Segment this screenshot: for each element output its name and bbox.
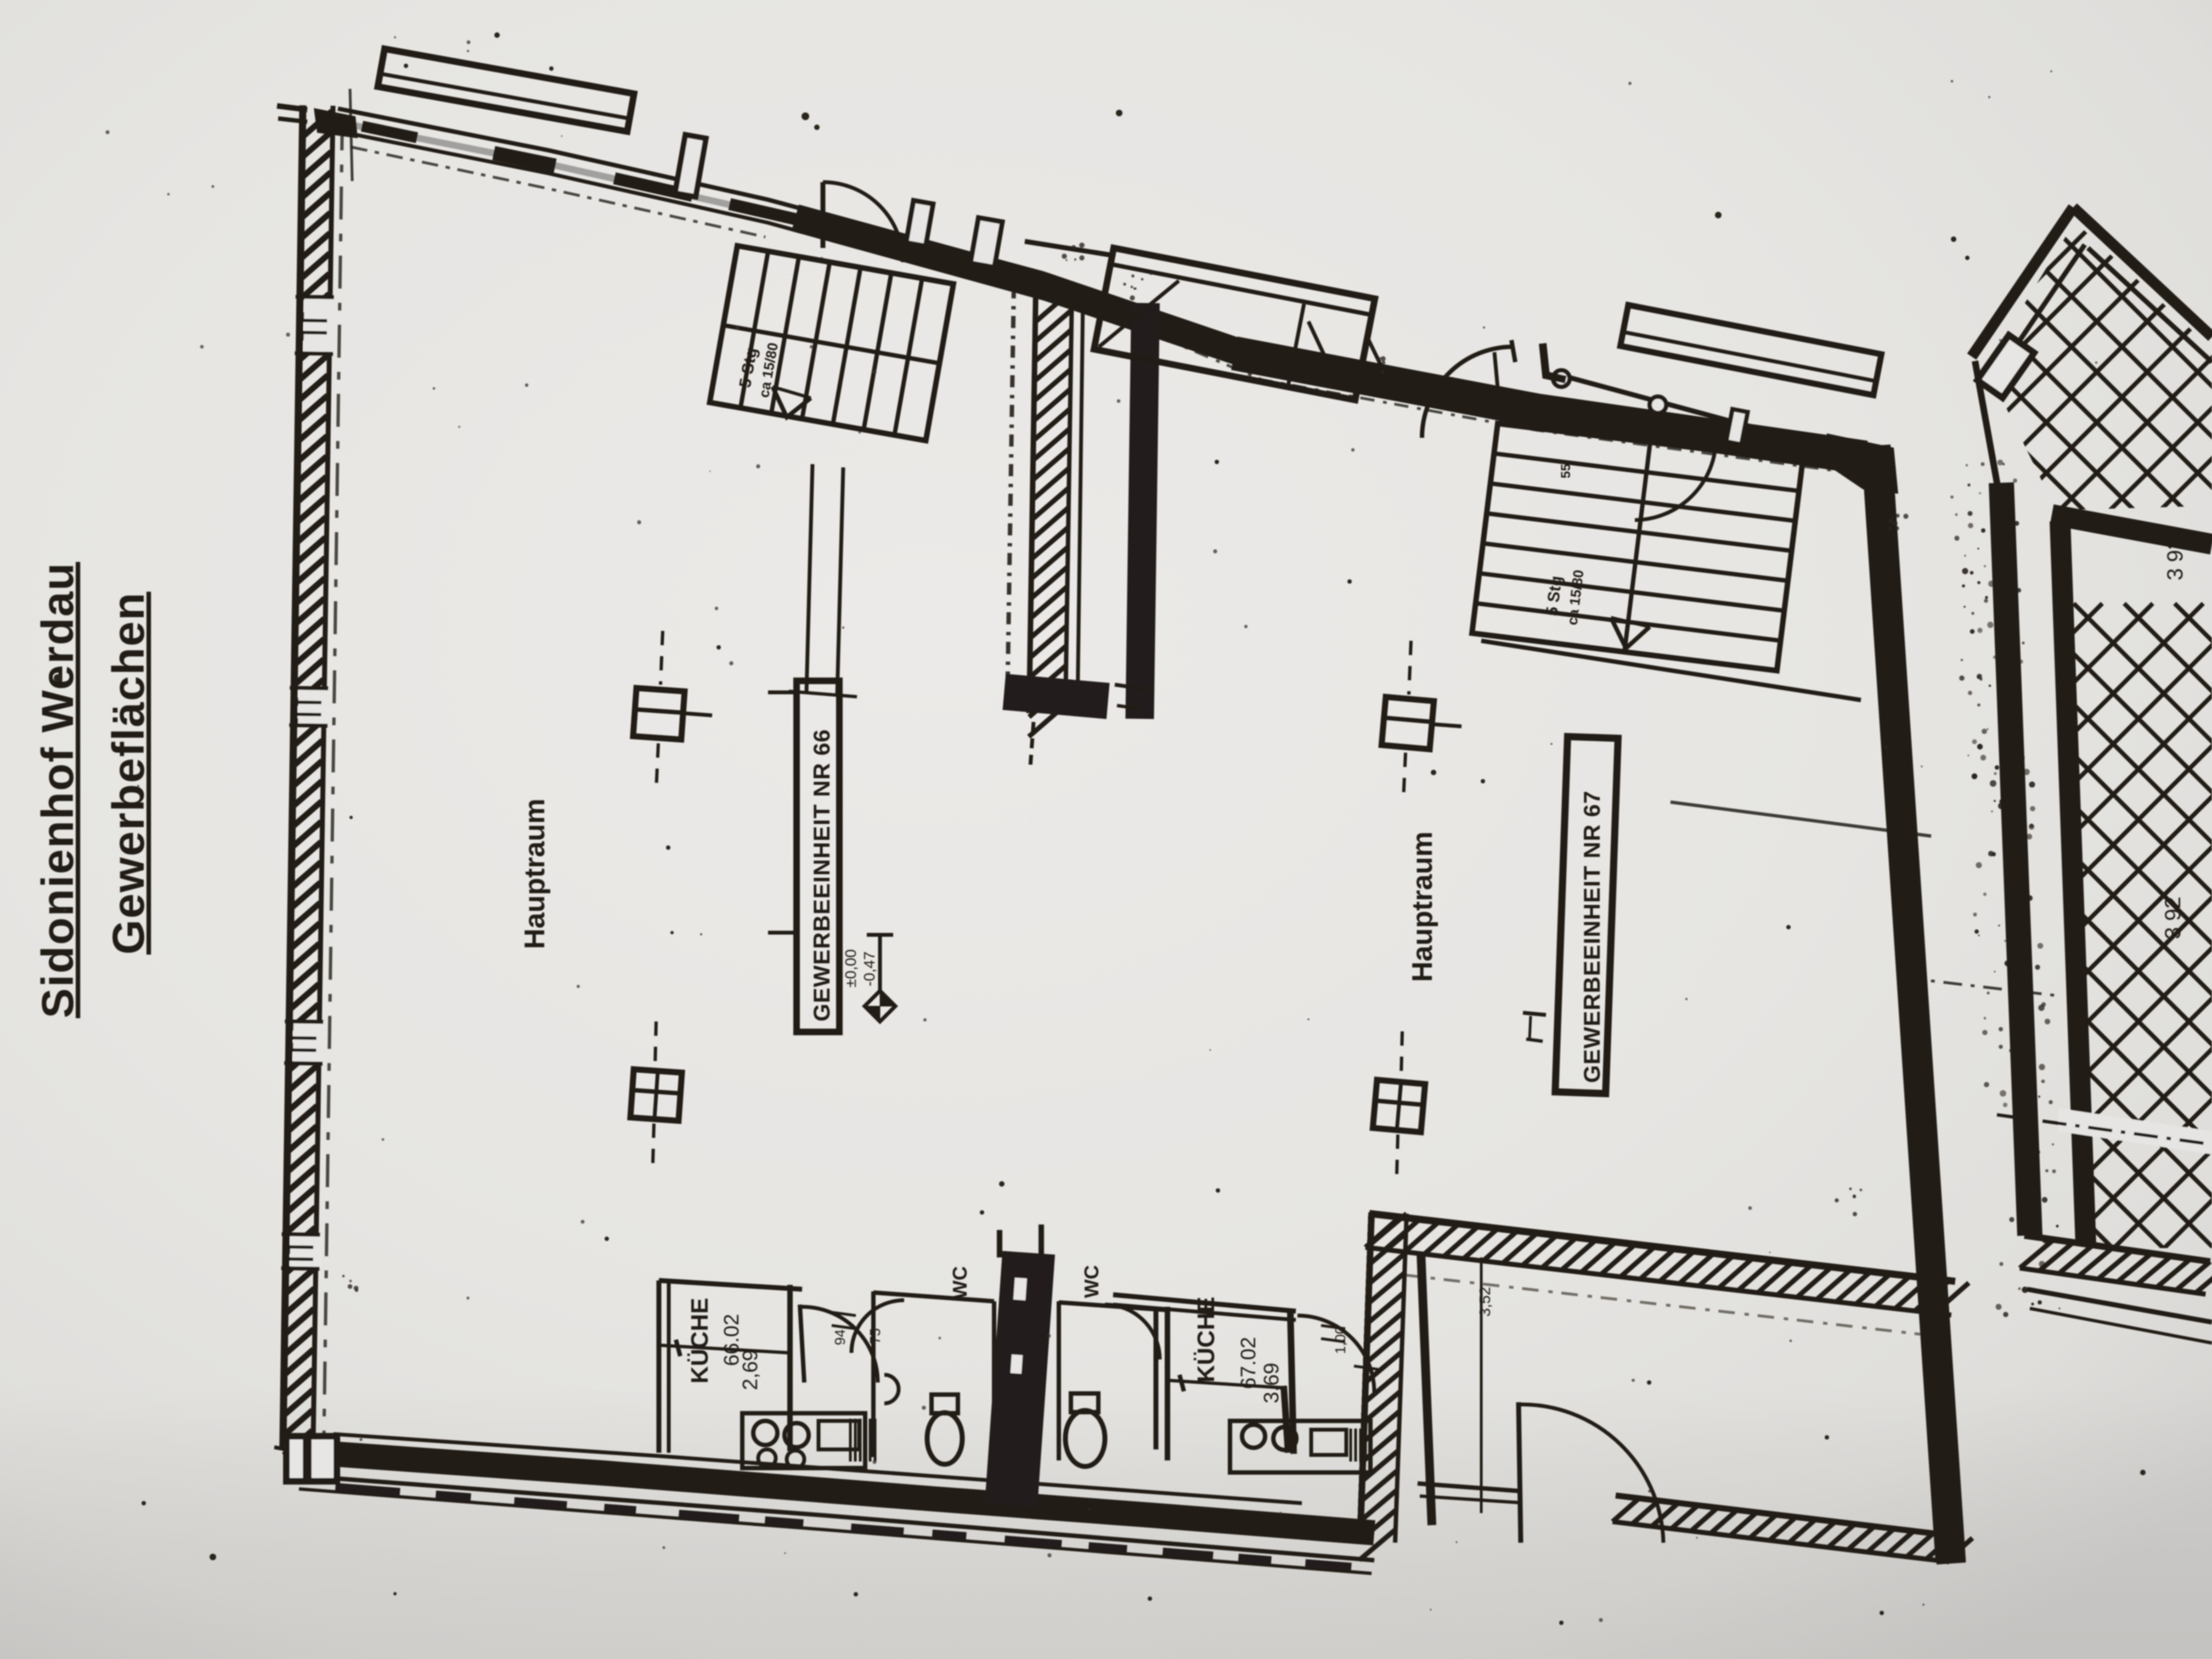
svg-text:3 92: 3 92 <box>2161 896 2185 939</box>
svg-text:3,69: 3,69 <box>1260 1363 1283 1403</box>
svg-text:2,69: 2,69 <box>739 1350 762 1390</box>
svg-text:±0,00: ±0,00 <box>842 949 859 988</box>
svg-text:55: 55 <box>1559 464 1573 478</box>
svg-text:Hauptraum: Hauptraum <box>519 799 551 949</box>
svg-text:GEWERBEEINHEIT NR 67: GEWERBEEINHEIT NR 67 <box>1579 791 1605 1083</box>
svg-text:94: 94 <box>832 1329 848 1345</box>
svg-text:KÜCHE: KÜCHE <box>686 1298 713 1384</box>
svg-text:Gewerbeflächen: Gewerbeflächen <box>104 592 154 955</box>
svg-text:GEWERBEEINHEIT NR 66: GEWERBEEINHEIT NR 66 <box>809 729 834 1022</box>
svg-text:KÜCHE: KÜCHE <box>1193 1297 1220 1383</box>
svg-text:Sidonienhof Werdau: Sidonienhof Werdau <box>33 562 83 1018</box>
svg-text:WC: WC <box>949 1266 971 1299</box>
svg-text:-0,47: -0,47 <box>861 951 878 986</box>
svg-text:3 92: 3 92 <box>2163 538 2187 580</box>
svg-text:3,52: 3,52 <box>1476 1287 1493 1317</box>
svg-text:WC: WC <box>1080 1265 1103 1298</box>
svg-text:Hauptraum: Hauptraum <box>1407 832 1438 982</box>
svg-text:67.02: 67.02 <box>1237 1337 1260 1389</box>
